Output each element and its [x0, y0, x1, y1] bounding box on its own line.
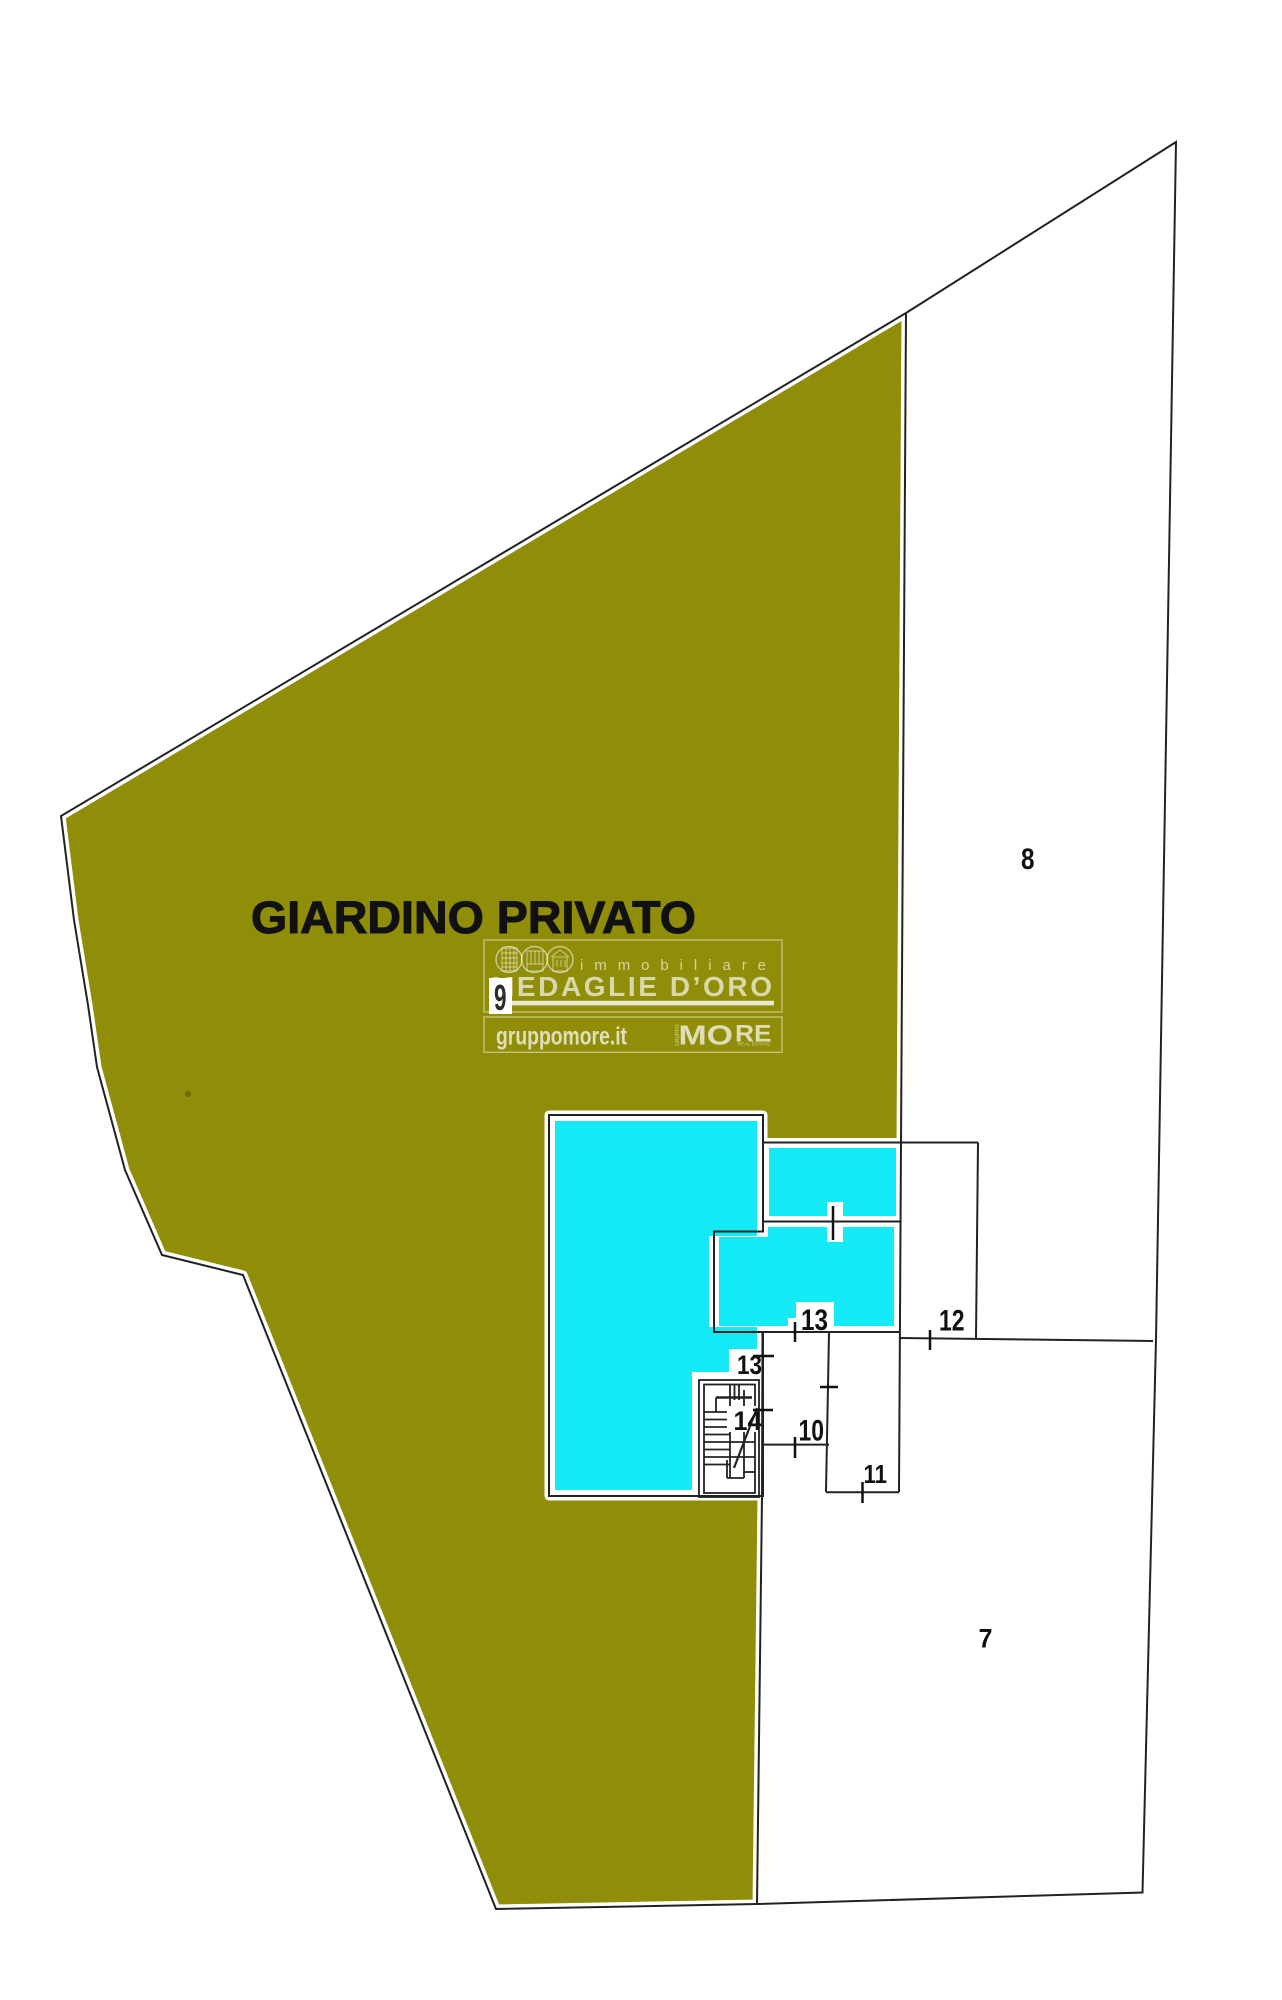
svg-text:MEDAGLIE D’ORO: MEDAGLIE D’ORO	[491, 971, 772, 1002]
svg-text:MO: MO	[679, 1019, 734, 1050]
svg-text:10: 10	[799, 1415, 825, 1448]
svg-text:GIARDINO PRIVATO: GIARDINO PRIVATO	[251, 892, 696, 943]
svg-text:8: 8	[1021, 843, 1035, 876]
svg-text:12: 12	[939, 1305, 965, 1338]
svg-text:14: 14	[734, 1406, 762, 1436]
svg-text:gruppomore.it: gruppomore.it	[496, 1023, 628, 1051]
svg-text:13: 13	[801, 1304, 828, 1337]
svg-text:11: 11	[864, 1459, 888, 1489]
svg-text:13: 13	[737, 1350, 762, 1380]
svg-text:7: 7	[979, 1624, 993, 1654]
svg-text:REAL ESTATE: REAL ESTATE	[738, 1042, 771, 1048]
svg-text:9: 9	[494, 977, 507, 1018]
